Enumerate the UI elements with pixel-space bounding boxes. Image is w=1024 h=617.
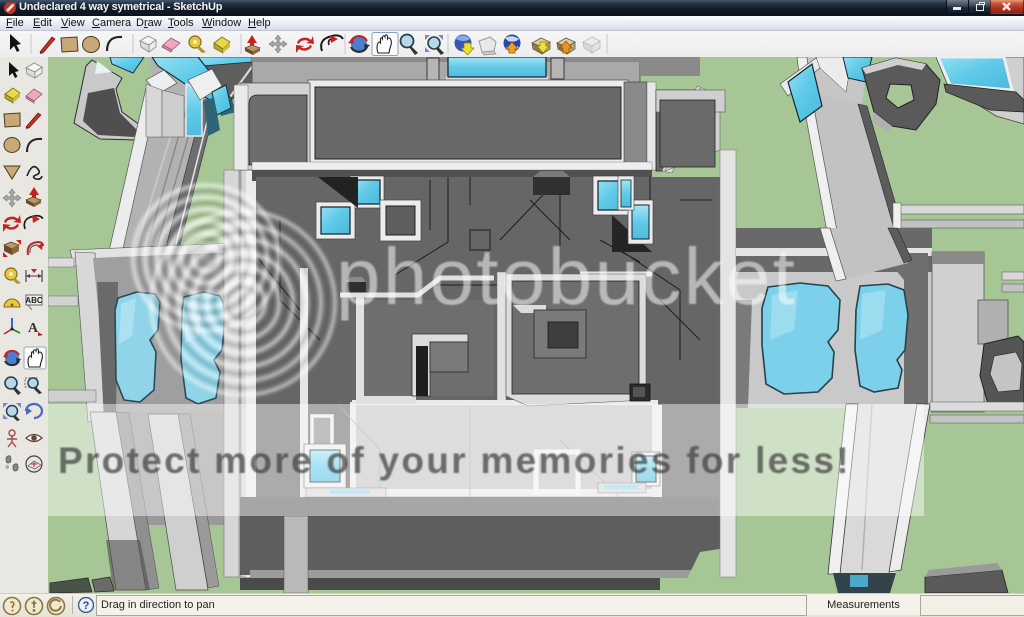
svg-text:Protect more of your memories: Protect more of your memories for less! [58, 440, 851, 481]
svg-text:?: ? [83, 600, 90, 612]
svg-text:photobucket: photobucket [336, 232, 797, 321]
